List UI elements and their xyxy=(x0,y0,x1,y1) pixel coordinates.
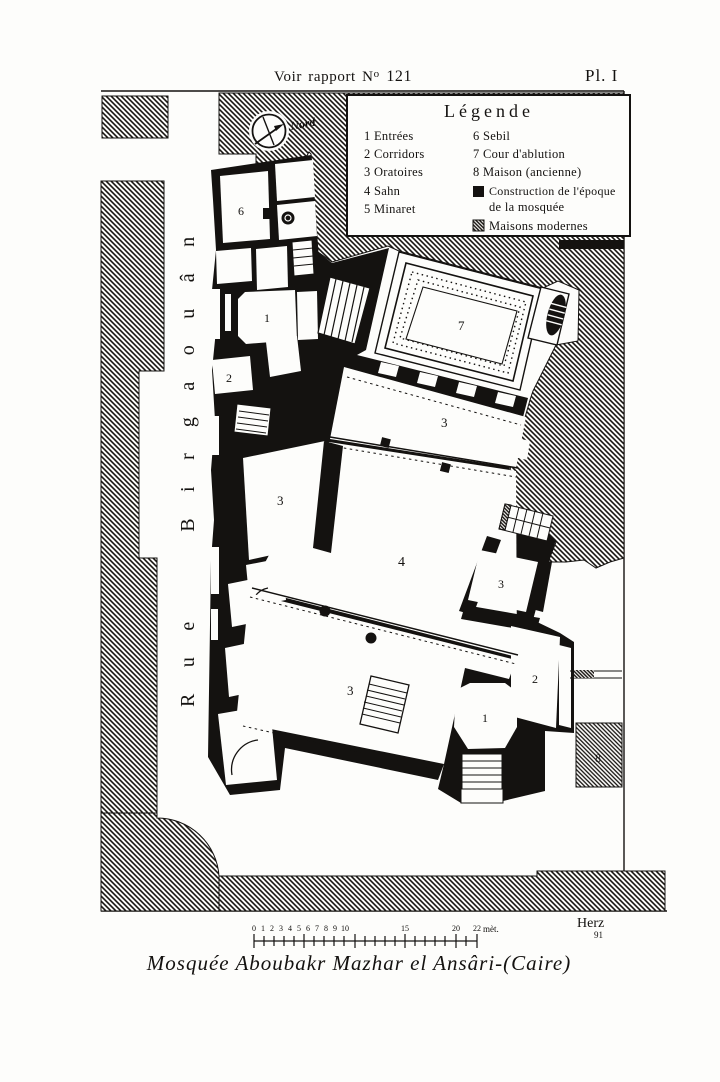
svg-text:2: 2 xyxy=(270,924,274,933)
svg-text:2: 2 xyxy=(226,371,232,385)
svg-text:2: 2 xyxy=(532,672,538,686)
svg-text:Pl. I: Pl. I xyxy=(585,66,618,85)
svg-text:5 Minaret: 5 Minaret xyxy=(364,202,416,216)
svg-text:7: 7 xyxy=(458,318,465,333)
svg-text:6 Sebil: 6 Sebil xyxy=(473,129,510,143)
svg-text:3: 3 xyxy=(441,415,448,430)
svg-text:4 Sahn: 4 Sahn xyxy=(364,184,401,198)
svg-text:3: 3 xyxy=(498,577,504,591)
svg-text:Voir rapport No 121: Voir rapport No 121 xyxy=(274,68,412,85)
svg-text:Rue Birgaouân: Rue Birgaouân xyxy=(177,210,199,707)
svg-text:8: 8 xyxy=(324,924,328,933)
svg-text:Construction de l'époque: Construction de l'époque xyxy=(489,184,616,198)
svg-text:7 Cour d'ablution: 7 Cour d'ablution xyxy=(473,147,566,161)
svg-text:3: 3 xyxy=(279,924,283,933)
svg-text:10: 10 xyxy=(341,924,349,933)
svg-text:Légende: Légende xyxy=(444,101,534,121)
svg-text:5: 5 xyxy=(297,924,301,933)
svg-text:mèt.: mèt. xyxy=(483,924,499,934)
svg-text:22: 22 xyxy=(473,924,481,933)
svg-text:3: 3 xyxy=(277,493,284,508)
svg-text:1 Entrées: 1 Entrées xyxy=(364,129,414,143)
svg-text:6: 6 xyxy=(306,924,310,933)
svg-text:Maisons modernes: Maisons modernes xyxy=(489,219,588,233)
svg-text:3 Oratoires: 3 Oratoires xyxy=(364,165,423,179)
svg-text:7: 7 xyxy=(315,924,319,933)
svg-text:6: 6 xyxy=(238,204,244,218)
svg-text:Mosquée Aboubakr Mazhar el Ans: Mosquée Aboubakr Mazhar el Ansâri-(Caire… xyxy=(146,951,571,975)
svg-text:Herz: Herz xyxy=(577,916,604,931)
svg-text:15: 15 xyxy=(401,924,409,933)
svg-text:0: 0 xyxy=(252,924,256,933)
svg-text:4: 4 xyxy=(288,924,292,933)
svg-text:3: 3 xyxy=(347,683,354,698)
svg-text:8: 8 xyxy=(595,751,601,765)
svg-text:1: 1 xyxy=(264,311,270,325)
svg-text:8 Maison (ancienne): 8 Maison (ancienne) xyxy=(473,165,581,179)
svg-text:91: 91 xyxy=(594,930,603,940)
svg-text:1: 1 xyxy=(482,711,488,725)
svg-text:9: 9 xyxy=(333,924,337,933)
svg-text:20: 20 xyxy=(452,924,460,933)
svg-text:de la mosquée: de la mosquée xyxy=(489,200,565,214)
svg-text:4: 4 xyxy=(398,555,405,570)
svg-text:2 Corridors: 2 Corridors xyxy=(364,147,425,161)
svg-text:1: 1 xyxy=(261,924,265,933)
